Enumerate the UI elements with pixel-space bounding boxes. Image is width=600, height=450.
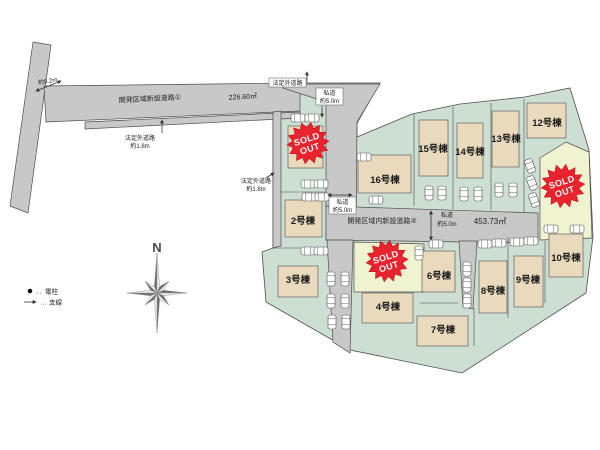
car-icon [314,180,328,188]
legend-dots: … [35,289,42,296]
road-1-area: 226.60㎡ [228,92,257,101]
car-icon [415,246,423,260]
car-icon [463,262,471,276]
legend-guy-label: 支線 [49,298,63,307]
car-icon [301,180,315,188]
car-icon [509,183,517,197]
road-2-area: 453.73㎡ [474,217,506,226]
private-road-label-3: 私道 [441,211,453,219]
car-icon [474,187,482,201]
road-2-name: 開発区域内新設道路② [347,216,416,225]
car-icon [463,278,471,292]
car-icon [291,114,305,122]
road-diagonal-west [10,42,51,213]
lot-8-label: 8号棟 [481,285,506,297]
car-icon [510,238,524,246]
lot-2-label: 2号棟 [291,215,316,227]
car-icon [341,294,349,308]
lot-14-label: 14号棟 [455,146,485,158]
unofficial-road-width-1: 約1.8m [130,142,149,150]
compass-rose: N [127,240,187,333]
lot-4-label: 4号棟 [376,301,401,313]
car-icon [302,193,316,201]
car-icon [357,153,371,161]
car-icon [492,239,506,247]
lot-15-label: 15号棟 [418,143,448,155]
car-icon [305,114,319,122]
car-icon [544,225,558,233]
car-icon [301,247,315,255]
car-icon [524,237,538,245]
car-icon [341,272,349,286]
car-icon [429,240,443,248]
unofficial-road-label-1: 法定外道路 [125,134,155,142]
car-icon [463,294,471,308]
lot-12-label: 12号棟 [532,117,562,129]
car-icon [327,294,335,308]
car-icon [425,186,433,200]
compass-north-label: N [152,240,161,255]
legend: … 電柱 … 支線 [24,287,63,307]
car-icon [478,240,492,248]
site-plan-canvas: 2号棟 3号棟 4号棟 6号棟 7号棟 8号棟 9号棟 10号棟 12号棟 13… [0,0,600,450]
car-icon [438,186,446,200]
unofficial-road-width-2: 約1.8m [246,185,265,193]
unofficial-road-label-2: 法定外道路 [241,177,271,185]
compass-star [127,253,187,333]
private-road-label-1: 私道 [323,89,335,97]
unofficial-road-label-3: 法定外道路 [272,79,302,87]
lot-13-label: 13号棟 [491,133,521,145]
car-icon [315,193,329,201]
car-icon [328,315,336,329]
legend-pole-label: 電柱 [45,287,59,296]
lot-16-label: 16号棟 [370,174,400,186]
legend-dots: … [40,300,47,307]
car-icon [460,187,468,201]
private-road-label-2: 私道 [336,198,348,206]
car-icon [314,247,328,255]
pole-icon [28,289,33,294]
car-icon [570,225,584,233]
private-road-width-3: 約5.0m [437,220,456,228]
car-icon [495,183,503,197]
lot-7-label: 7号棟 [431,324,456,336]
lot-3-label: 3号棟 [286,274,311,286]
car-icon [327,272,335,286]
lot-6-label: 6号棟 [427,270,452,282]
private-road-width-1: 約5.0m [320,97,339,105]
car-icon [342,315,350,329]
road-unofficial-strip-v [273,111,281,248]
car-icon [369,196,383,204]
private-road-width-2: 約5.0m [333,206,352,214]
site-plan: 2号棟 3号棟 4号棟 6号棟 7号棟 8号棟 9号棟 10号棟 12号棟 13… [0,0,600,450]
lot-9-label: 9号棟 [516,274,541,286]
lot-10-label: 10号棟 [551,252,581,264]
